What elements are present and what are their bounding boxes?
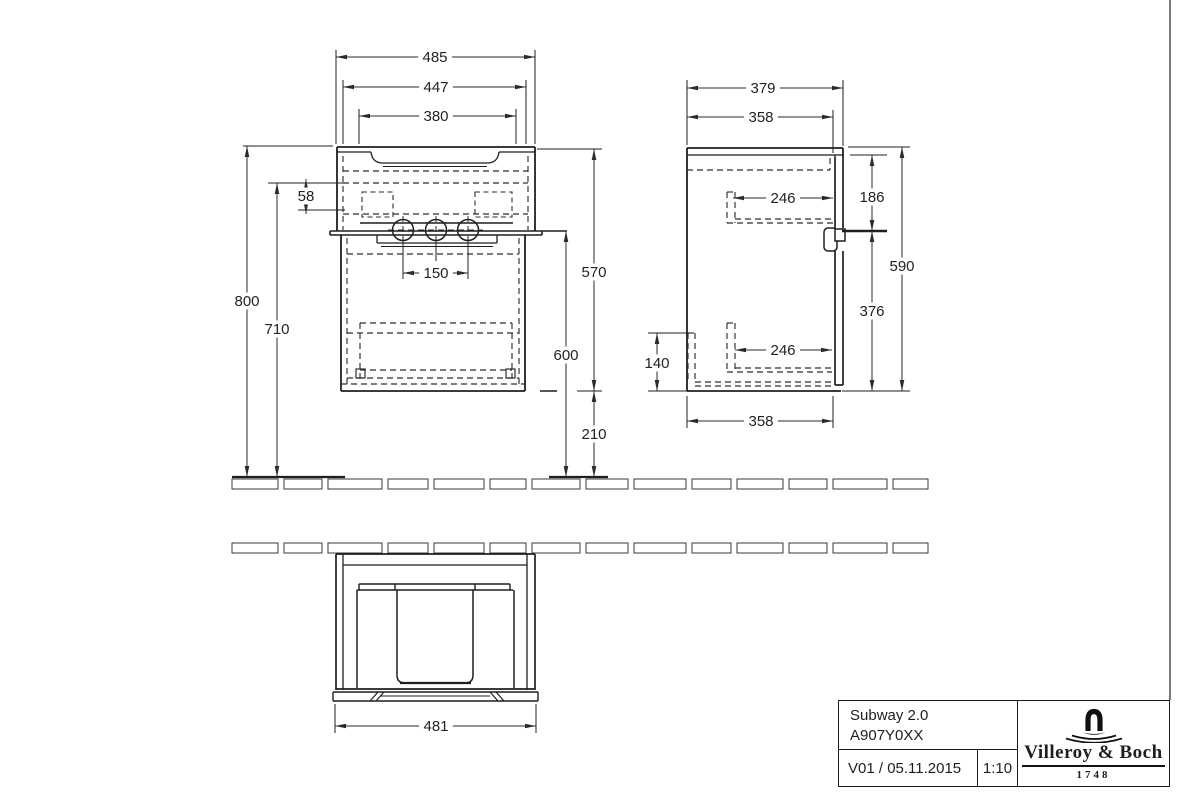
title-block-left: Subway 2.0 A907Y0XX V01 / 05.11.2015 1:1… [839, 701, 1018, 786]
dim-label-plan-body-width: 481 [423, 718, 448, 735]
dim-tap-spacing: 150 [403, 265, 468, 283]
title-block-bottom-row: V01 / 05.11.2015 1:10 [839, 750, 1017, 786]
dim-basin-width: 485 [336, 49, 535, 67]
scale-label: 1:10 [978, 750, 1017, 786]
side-view [687, 148, 845, 391]
dim-upper-section-height: 186 [855, 155, 889, 231]
dim-label-basin-width: 485 [422, 49, 447, 66]
dim-mount-height: 800 [230, 146, 264, 477]
dim-label-lower-bracket-depth: 246 [770, 342, 795, 359]
vb-arch-icon [1057, 707, 1131, 743]
dim-hole-offset: 58 [293, 179, 318, 214]
brand-since-label: 1748 [1077, 769, 1111, 781]
dim-label-lower-section-height: 376 [859, 303, 884, 320]
dim-lower-section-height: 376 [855, 231, 889, 391]
dim-label-bottom-bracket-height: 140 [644, 355, 669, 372]
front-view-ticks [243, 50, 602, 391]
product-cell: Subway 2.0 A907Y0XX [839, 701, 1017, 750]
title-block: Subway 2.0 A907Y0XX V01 / 05.11.2015 1:1… [838, 700, 1170, 787]
dim-label-underside-height: 710 [264, 321, 289, 338]
dim-bottom-bracket-height: 140 [640, 333, 674, 391]
dim-clearance-height: 210 [577, 391, 611, 477]
brand-logo: Villeroy & Boch 1748 [1018, 701, 1169, 786]
brand-name-label: Villeroy & Boch [1022, 743, 1164, 767]
dim-label-top-depth: 358 [748, 109, 773, 126]
dim-label-mount-height: 800 [234, 293, 259, 310]
wall-hatch [232, 543, 928, 553]
dim-lower-bracket-depth: 246 [735, 342, 832, 360]
plan-view [333, 554, 538, 701]
dim-label-unit-height: 570 [581, 264, 606, 281]
dim-label-cabinet-width: 447 [423, 79, 448, 96]
dim-total-depth: 379 [687, 80, 843, 98]
dim-cabinet-width: 447 [343, 79, 526, 97]
dim-body-height: 590 [885, 147, 919, 391]
dim-label-clearance-height: 210 [581, 426, 606, 443]
version-date-label: V01 / 05.11.2015 [839, 750, 978, 786]
dim-label-inner-width: 380 [423, 108, 448, 125]
dim-label-basin-height: 600 [553, 347, 578, 364]
dim-label-bottom-depth: 358 [748, 413, 773, 430]
dim-upper-bracket-depth: 246 [733, 190, 833, 208]
dim-plan-body-width: 481 [335, 718, 536, 736]
product-line-label: Subway 2.0 [850, 706, 1017, 726]
dim-label-total-depth: 379 [750, 80, 775, 97]
technical-drawing-canvas: 4854473801508007105857060021037935824624… [0, 0, 1187, 807]
dim-underside-height: 710 [260, 183, 294, 477]
drawing-sheet: 4854473801508007105857060021037935824624… [0, 0, 1187, 807]
dim-top-depth: 358 [687, 109, 833, 127]
dim-label-tap-spacing: 150 [423, 265, 448, 282]
dim-label-hole-offset: 58 [298, 188, 315, 205]
floor-hatch [232, 479, 928, 489]
dim-label-body-height: 590 [889, 258, 914, 275]
dim-inner-width: 380 [359, 108, 516, 126]
dim-label-upper-bracket-depth: 246 [770, 190, 795, 207]
dim-label-upper-section-height: 186 [859, 189, 884, 206]
dim-bottom-depth: 358 [687, 413, 833, 431]
article-number-label: A907Y0XX [850, 726, 1017, 746]
